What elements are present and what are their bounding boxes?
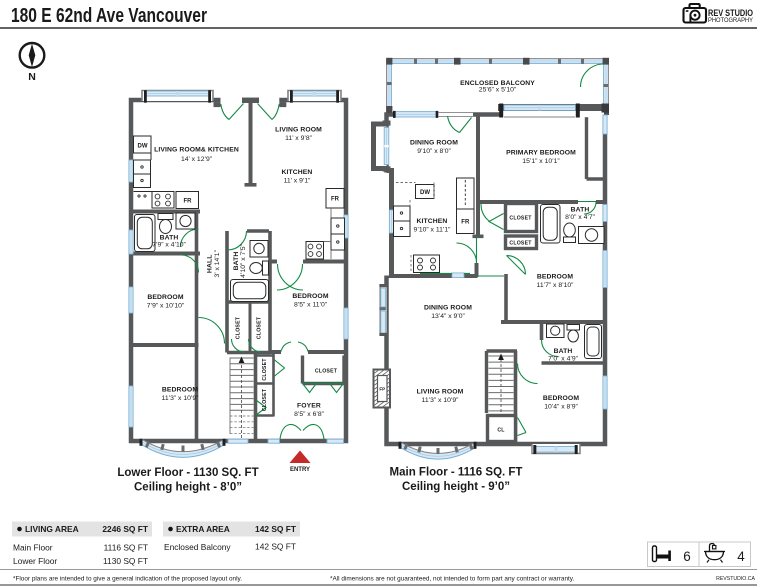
svg-text:15’1” x 10’1”: 15’1” x 10’1”: [522, 158, 560, 165]
svg-text:KITCHEN: KITCHEN: [282, 169, 313, 176]
svg-text:11’7” x 8’10”: 11’7” x 8’10”: [537, 282, 575, 289]
svg-text:Main Floor - 1116 SQ. FT: Main Floor - 1116 SQ. FT: [390, 467, 523, 479]
svg-text:PRIMARY BEDROOM: PRIMARY BEDROOM: [506, 150, 576, 157]
svg-text:3’ x 14’1”: 3’ x 14’1”: [214, 249, 221, 277]
svg-text:FOYER: FOYER: [297, 403, 321, 410]
svg-text:1130 SQ FT: 1130 SQ FT: [103, 556, 148, 566]
svg-text:DW: DW: [420, 190, 430, 196]
svg-text:BEDROOM: BEDROOM: [292, 293, 328, 300]
svg-text:LIVING ROOM: LIVING ROOM: [275, 127, 322, 134]
svg-text:CLOSET: CLOSET: [315, 369, 338, 375]
svg-text:11’3” x 10’9”: 11’3” x 10’9”: [162, 395, 200, 402]
svg-text:9’10” x 11’1”: 9’10” x 11’1”: [414, 227, 452, 234]
svg-text:LIVING ROOM: LIVING ROOM: [417, 389, 464, 396]
svg-text:2246 SQ FT: 2246 SQ FT: [102, 524, 149, 534]
svg-text:FR: FR: [331, 197, 340, 203]
svg-text:25’6” x 5’10”: 25’6” x 5’10”: [479, 87, 517, 94]
svg-text:CLOSET: CLOSET: [257, 316, 263, 339]
svg-text:4: 4: [737, 549, 745, 564]
svg-text:CLOSET: CLOSET: [236, 316, 242, 339]
svg-text:CL: CL: [497, 428, 505, 434]
svg-text:BATH: BATH: [571, 207, 590, 214]
svg-text:BEDROOM: BEDROOM: [537, 274, 573, 281]
svg-text:10’4” x 8’9”: 10’4” x 8’9”: [544, 404, 578, 411]
svg-text:*Floor plans are intended to g: *Floor plans are intended to give a gene…: [13, 576, 242, 583]
svg-text:142 SQ FT: 142 SQ FT: [255, 524, 297, 534]
svg-text:CLOSET: CLOSET: [262, 358, 268, 381]
svg-text:*All dimensions are not guaran: *All dimensions are not guaranteed, not …: [330, 576, 575, 583]
svg-text:Enclosed Balcony: Enclosed Balcony: [164, 542, 231, 552]
svg-text:Main Floor: Main Floor: [13, 543, 53, 553]
svg-text:ENTRY: ENTRY: [290, 467, 310, 473]
svg-text:7’0” x 4’9”: 7’0” x 4’9”: [548, 356, 579, 363]
svg-text:PHOTOGRAPHY: PHOTOGRAPHY: [708, 18, 753, 24]
svg-text:BATH: BATH: [554, 348, 573, 355]
svg-text:DINING ROOM: DINING ROOM: [410, 140, 458, 147]
svg-text:11’3” x 10’9”: 11’3” x 10’9”: [422, 397, 460, 404]
svg-text:Ceiling height - 8’0”: Ceiling height - 8’0”: [134, 482, 242, 494]
svg-text:9’10” x 8’0”: 9’10” x 8’0”: [417, 148, 451, 155]
svg-text:11’ x 9’8”: 11’ x 9’8”: [285, 135, 313, 142]
svg-text:FR: FR: [461, 220, 470, 226]
svg-text:Lower Floor - 1130 SQ. FT: Lower Floor - 1130 SQ. FT: [117, 467, 258, 479]
svg-text:13’4” x 9’0”: 13’4” x 9’0”: [431, 313, 465, 320]
svg-text:CLOSET: CLOSET: [509, 241, 532, 247]
svg-text:8’5” x 11’0”: 8’5” x 11’0”: [294, 302, 328, 309]
svg-text:EXTRA AREA: EXTRA AREA: [176, 524, 230, 534]
svg-text:6: 6: [683, 549, 691, 564]
svg-text:FR: FR: [184, 199, 193, 205]
svg-text:Ceiling height - 9’0”: Ceiling height - 9’0”: [402, 481, 510, 493]
svg-text:142 SQ FT: 142 SQ FT: [255, 542, 296, 552]
svg-text:Lower Floor: Lower Floor: [13, 556, 57, 566]
svg-text:BEDROOM: BEDROOM: [543, 395, 579, 402]
svg-text:FP: FP: [379, 387, 385, 392]
svg-text:8’5” x 6’8”: 8’5” x 6’8”: [294, 411, 325, 418]
svg-text:DW: DW: [138, 144, 148, 150]
svg-text:CLOSET: CLOSET: [262, 388, 268, 411]
svg-text:KITCHEN: KITCHEN: [417, 218, 448, 225]
svg-text:BEDROOM: BEDROOM: [147, 294, 183, 301]
svg-text:7’9” x 4’10”: 7’9” x 4’10”: [152, 242, 186, 249]
svg-text:HALL: HALL: [207, 255, 214, 274]
svg-text:REVSTUDIO.CA: REVSTUDIO.CA: [716, 576, 755, 582]
svg-text:DINING ROOM: DINING ROOM: [424, 305, 472, 312]
svg-text:180 E 62nd Ave Vancouver: 180 E 62nd Ave Vancouver: [11, 5, 207, 27]
svg-text:LIVING ROOM& KITCHEN: LIVING ROOM& KITCHEN: [154, 147, 239, 154]
svg-text:4’10” x 7’5”: 4’10” x 7’5”: [240, 243, 247, 277]
svg-text:LIVING AREA: LIVING AREA: [25, 524, 79, 534]
svg-text:BATH: BATH: [160, 235, 179, 242]
svg-text:7’9” x 10’10”: 7’9” x 10’10”: [147, 303, 185, 310]
svg-text:N: N: [28, 71, 36, 83]
svg-text:CLOSET: CLOSET: [509, 216, 532, 222]
svg-text:1116 SQ FT: 1116 SQ FT: [104, 543, 148, 553]
svg-text:11’ x 9’1”: 11’ x 9’1”: [284, 178, 312, 185]
svg-text:8’0” x 4’7”: 8’0” x 4’7”: [565, 214, 596, 221]
svg-text:BATH: BATH: [233, 252, 240, 271]
svg-text:14’ x 12’9”: 14’ x 12’9”: [181, 156, 213, 163]
svg-text:BEDROOM: BEDROOM: [162, 387, 198, 394]
